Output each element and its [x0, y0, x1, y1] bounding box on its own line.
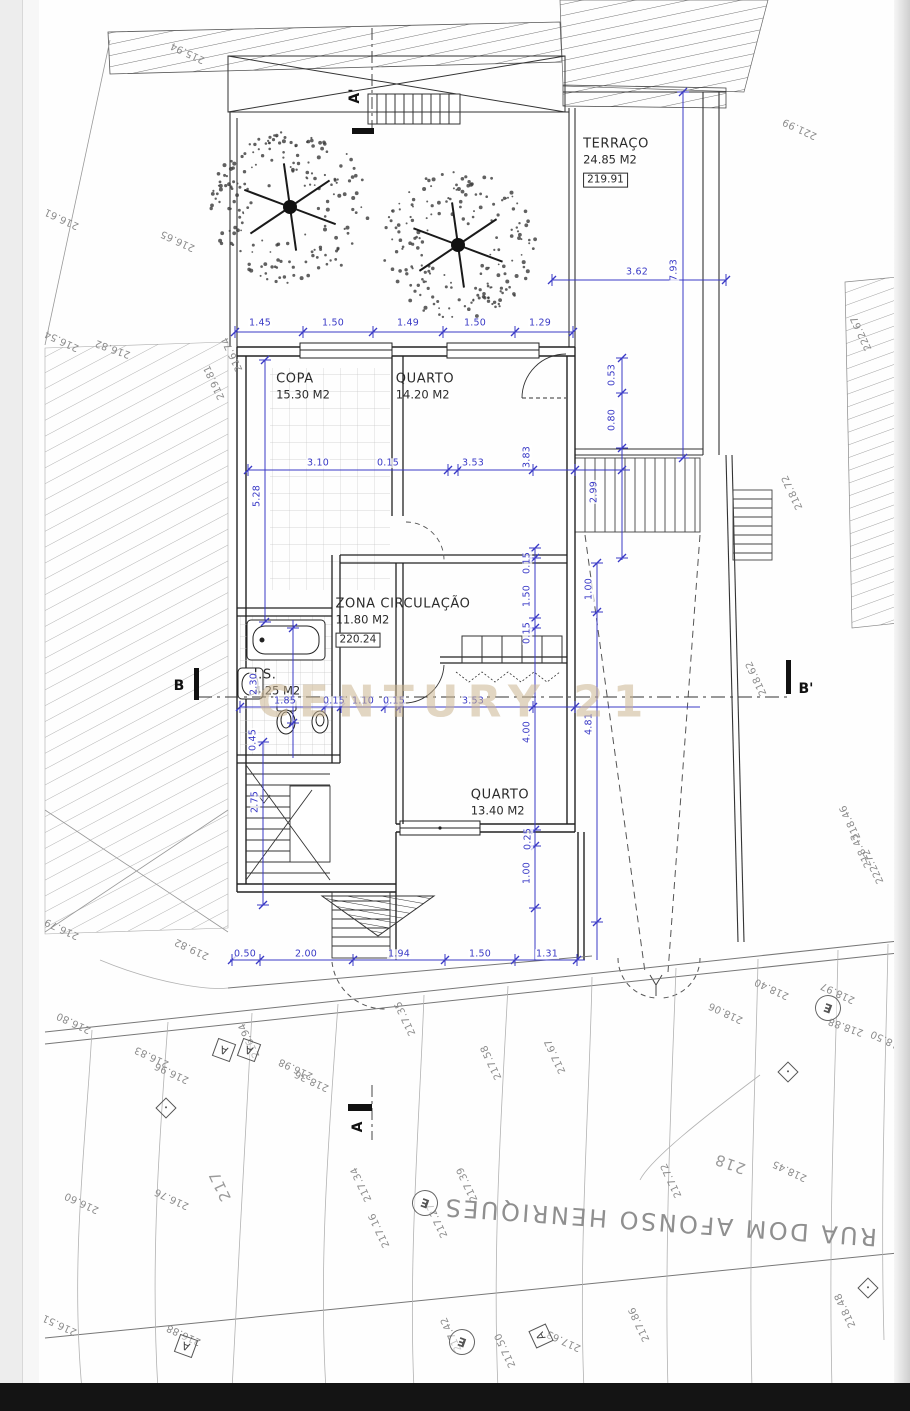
dimension-label: 0.25 — [523, 827, 533, 851]
dimension-label: 1.45 — [248, 318, 272, 328]
dimension-label: 2.00 — [294, 949, 318, 959]
dimension-label: 0.50 — [233, 949, 257, 959]
zona-steps — [456, 636, 562, 682]
dimension-label: 2.99 — [589, 480, 599, 504]
dimension-label: 0.15 — [522, 551, 532, 575]
room-label: TERRAÇO 24.85 M2 219.91 — [583, 137, 649, 188]
street-edges — [45, 940, 908, 1338]
dimension-label: 0.80 — [607, 408, 617, 432]
dimension-label: 1.50 — [321, 318, 345, 328]
dimension-label: 0.45 — [248, 728, 258, 752]
room-area: 13.40 M2 — [471, 804, 530, 818]
room-level-box: 220.24 — [336, 632, 381, 647]
room-name: QUARTO — [396, 372, 455, 388]
exterior-stairs — [575, 458, 772, 560]
dimension-label: 3.83 — [522, 445, 532, 469]
dimension-label: 0.53 — [607, 363, 617, 387]
room-area: 15.30 M2 — [276, 388, 330, 402]
dimension-label: 1.50 — [522, 584, 532, 608]
dimension-label: 0.15 — [522, 621, 532, 645]
room-label: QUARTO 14.20 M2 — [396, 372, 455, 403]
dimension-label: 1.29 — [528, 318, 552, 328]
dimension-label: 3.53 — [461, 458, 485, 468]
room-name: ZONA CIRCULAÇÃO — [336, 597, 471, 613]
left-margin-strip2 — [23, 0, 39, 1383]
section-label: B — [174, 678, 185, 694]
dimension-label: 3.62 — [625, 267, 649, 277]
section-label: B' — [799, 681, 814, 697]
dimension-label: 5.28 — [252, 484, 262, 508]
room-label: COPA 15.30 M2 — [276, 372, 330, 403]
dimension-label: 2.75 — [250, 790, 260, 814]
room-label: QUARTO 13.40 M2 — [471, 788, 530, 819]
century21-watermark: CENTURY 21 — [258, 677, 653, 728]
trees — [210, 131, 537, 318]
room-area: 11.80 M2 — [336, 613, 471, 627]
room-area: 14.20 M2 — [396, 388, 455, 402]
dimension-label: 1.50 — [463, 318, 487, 328]
dimension-label: 1.50 — [468, 949, 492, 959]
dimension-label: 1.49 — [396, 318, 420, 328]
dimension-label: 1.00 — [522, 861, 532, 885]
section-label: A — [350, 1122, 366, 1133]
left-margin-strip — [0, 0, 23, 1383]
staircase — [246, 765, 330, 880]
room-level-box: 219.91 — [583, 172, 628, 187]
floorplan-canvas: TERRAÇO 24.85 M2 219.91 COPA 15.30 M2 QU… — [0, 0, 910, 1411]
dimension-label: 1.94 — [387, 949, 411, 959]
room-area: 24.85 M2 — [583, 153, 649, 167]
dimension-label: 1.31 — [535, 949, 559, 959]
dimension-label: 0.15 — [376, 458, 400, 468]
dimension-label: 3.10 — [306, 458, 330, 468]
gable-hatch — [322, 896, 434, 936]
dimension-label: 7.93 — [669, 258, 679, 282]
room-name: COPA — [276, 372, 330, 388]
right-margin-strip — [894, 0, 910, 1383]
room-name: QUARTO — [471, 788, 530, 804]
room-name: TERRAÇO — [583, 137, 649, 153]
room-label: ZONA CIRCULAÇÃO 11.80 M2 220.24 — [336, 597, 471, 648]
dimension-label: 1.00 — [584, 577, 594, 601]
bottom-black-bar — [0, 1383, 910, 1411]
section-label: A' — [347, 88, 363, 103]
ramp-dashed — [585, 535, 700, 972]
